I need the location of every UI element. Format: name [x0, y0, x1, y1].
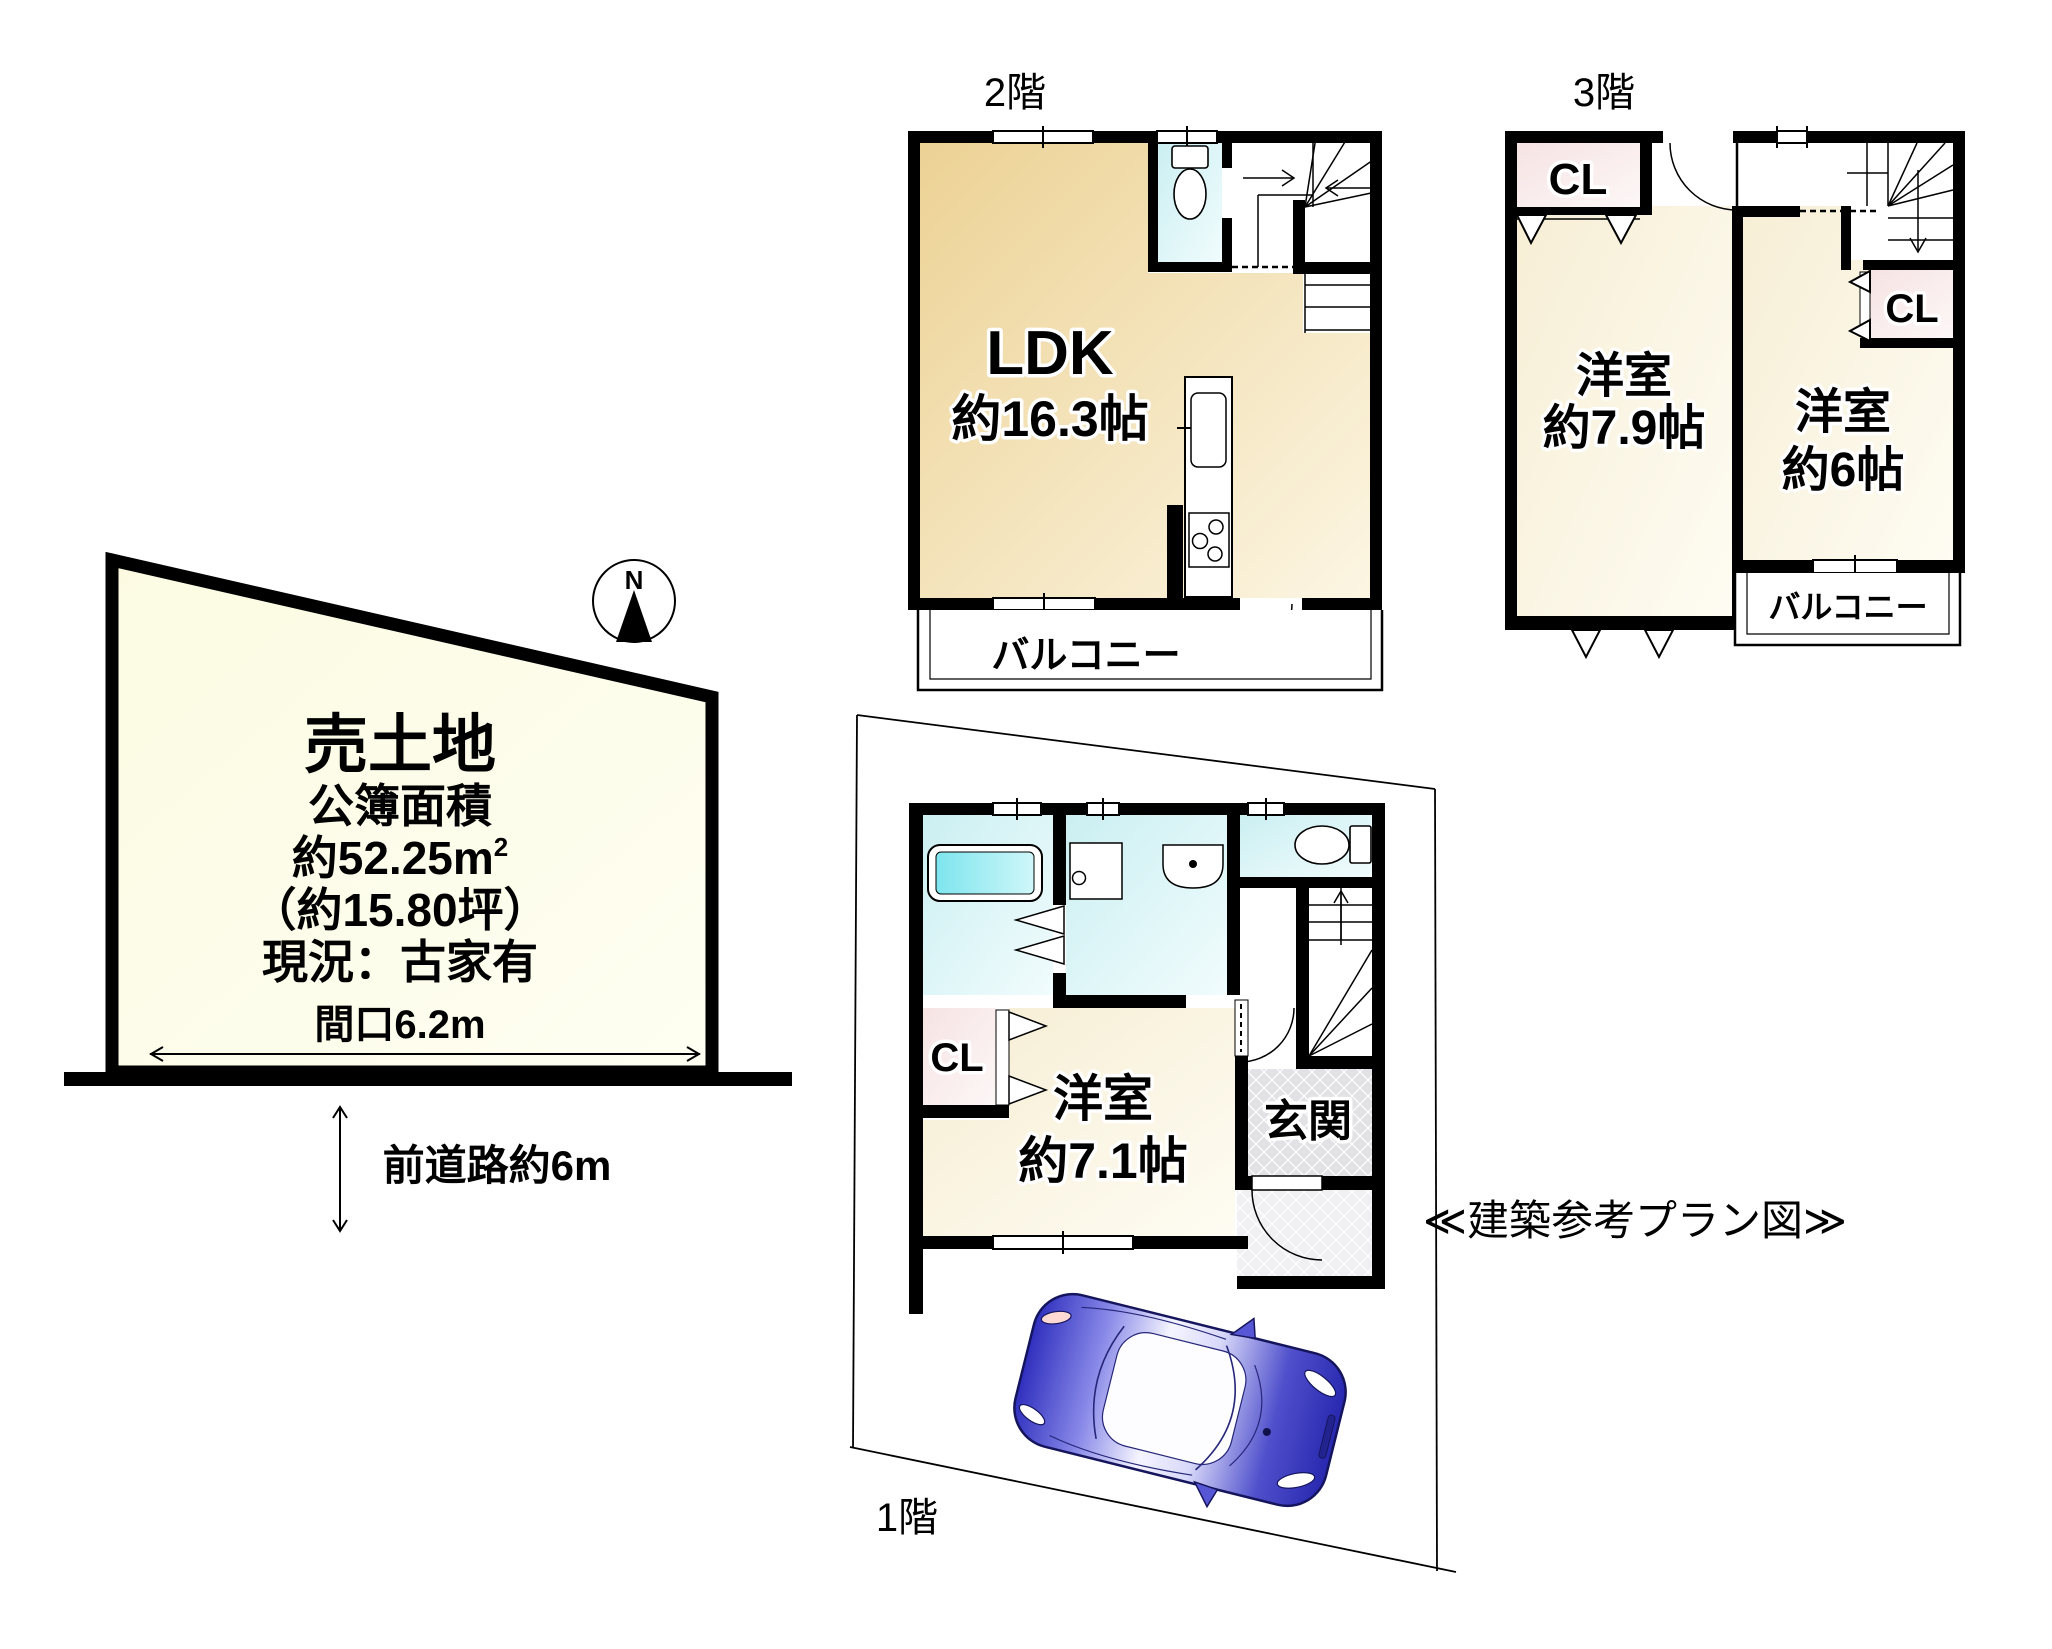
- washing-machine-icon: [1070, 843, 1122, 899]
- washroom-1f: [1066, 815, 1227, 995]
- porch-floor: [1237, 1190, 1385, 1276]
- wall: [1860, 338, 1965, 348]
- plan-caption: ≪建築参考プラン図≫: [1423, 1197, 1847, 1244]
- floor-plan-drawing: 売土地 公簿面積 約52.25m2 （約15.80坪） 現況：古家有 間口6.2…: [0, 0, 2052, 1649]
- closet-b-label: CL: [1885, 287, 1938, 331]
- wall: [909, 803, 1385, 815]
- floor-plan-canvas: 売土地 公簿面積 約52.25m2 （約15.80坪） 現況：古家有 間口6.2…: [0, 0, 2052, 1649]
- kitchen-counter: [1177, 377, 1232, 597]
- toilet-door-2f: [1222, 168, 1232, 218]
- wall: [1953, 131, 1965, 573]
- wall: [1511, 207, 1652, 215]
- wall: [1505, 131, 1517, 630]
- land-status: 現況：古家有: [262, 936, 538, 988]
- toilet-icon: [1295, 826, 1371, 864]
- land-plot: 売土地 公簿面積 約52.25m2 （約15.80坪） 現況：古家有 間口6.2…: [64, 560, 792, 1231]
- room-b-label: 洋室: [1795, 386, 1891, 439]
- bathtub-icon: [928, 845, 1042, 901]
- stairs-1f: [1309, 888, 1372, 1056]
- floor1-title: 1階: [876, 1496, 938, 1540]
- bathroom-1f: [923, 815, 1053, 995]
- wall: [1227, 803, 1240, 1008]
- wall: [1863, 260, 1965, 270]
- wall: [1293, 262, 1382, 274]
- wall: [1370, 131, 1382, 610]
- closet-hanger-mark: [1572, 630, 1600, 657]
- front-road-label: 前道路約6m: [383, 1142, 612, 1189]
- stove-icon: [1189, 513, 1229, 567]
- stair-run-zone: [1303, 273, 1376, 333]
- floor3-plan: 3階: [1505, 71, 1965, 657]
- wall: [1841, 206, 1851, 270]
- room-1f-door: [1235, 1000, 1248, 1056]
- wall: [1148, 262, 1232, 272]
- wall: [1148, 137, 1158, 272]
- wall: [1296, 877, 1309, 1069]
- floor1-plan: CL 玄関 洋室 約7.1帖 1階: [850, 715, 1456, 1572]
- floor2-title: 2階: [984, 71, 1046, 115]
- land-area: 約52.25m2: [292, 832, 508, 884]
- wall: [908, 131, 1382, 143]
- road-dimension-arrow: [333, 1107, 347, 1231]
- balcony2-label: バルコニー: [991, 635, 1180, 677]
- closet-1f-label: CL: [930, 1036, 983, 1080]
- stair-zone-3f: [1847, 143, 1953, 260]
- room-a-size-label: 約7.9帖: [1543, 402, 1706, 455]
- land-title: 売土地: [304, 709, 496, 781]
- hall-3f: [1652, 143, 1732, 206]
- entrance-label: 玄関: [1264, 1097, 1352, 1146]
- closet-hanger-mark: [1645, 630, 1673, 657]
- ldk-label: LDK: [986, 319, 1114, 388]
- closet-a-label: CL: [1549, 155, 1608, 204]
- wall: [1505, 616, 1743, 630]
- frontage-label: 間口6.2m: [314, 1003, 485, 1047]
- wall: [1505, 131, 1965, 143]
- compass-icon: N: [593, 560, 675, 642]
- floor3-title: 3階: [1573, 71, 1635, 115]
- wall: [1167, 505, 1183, 598]
- room-1f-size-label: 約7.1帖: [1018, 1133, 1188, 1189]
- room-1f-label: 洋室: [1053, 1071, 1153, 1127]
- wall: [1640, 137, 1652, 215]
- wall: [908, 598, 1382, 610]
- ldk-size-label: 約16.3帖: [951, 391, 1148, 447]
- wall: [1237, 1276, 1385, 1289]
- room-b-size-label: 約6帖: [1782, 444, 1905, 497]
- toilet-icon: [1172, 146, 1208, 219]
- balcony3-label: バルコニー: [1768, 589, 1927, 625]
- floor2-plan: 2階: [908, 71, 1382, 692]
- land-area-caption: 公簿面積: [308, 780, 492, 832]
- wall: [908, 131, 920, 610]
- wall: [1372, 803, 1385, 1289]
- sink-icon: [1191, 393, 1226, 467]
- room-a-label: 洋室: [1576, 350, 1672, 403]
- hall-3f-right: [1743, 143, 1847, 206]
- wall: [1733, 206, 1800, 217]
- car-illustration: [1001, 1267, 1358, 1533]
- wall: [1296, 1056, 1385, 1069]
- wall: [909, 1105, 1009, 1118]
- washbasin-icon: [1163, 845, 1223, 888]
- land-area-tsubo: （約15.80坪）: [250, 884, 549, 936]
